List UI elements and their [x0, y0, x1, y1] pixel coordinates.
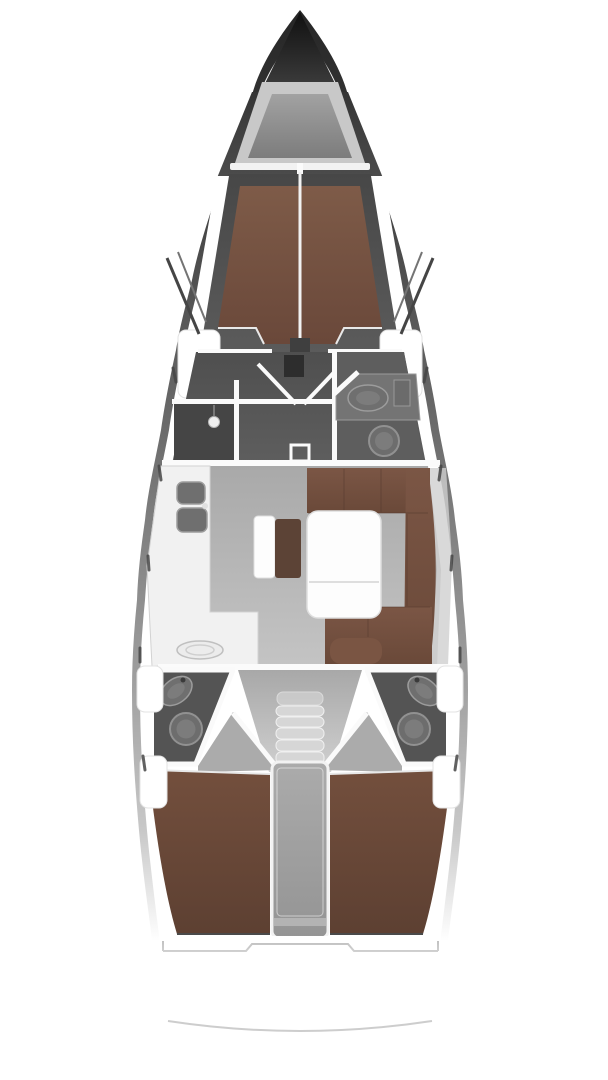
floor-plan-svg	[0, 0, 608, 1080]
yacht-floor-plan	[0, 0, 608, 1080]
shower-head-icon	[209, 417, 220, 428]
forward-head-area	[172, 349, 426, 464]
mast-step	[284, 355, 304, 377]
shower-partition-wall	[234, 380, 239, 464]
aft-head-starboard-faucet	[415, 678, 420, 683]
v-berth-foot-notch	[290, 338, 310, 352]
saloon	[147, 466, 452, 668]
center-bench-pair	[254, 516, 301, 578]
galley-faucet	[202, 503, 208, 509]
engine-box	[272, 762, 328, 938]
aft-head-port-toilet-bowl	[177, 720, 196, 739]
step-3	[276, 728, 324, 739]
v-berth	[218, 172, 382, 352]
fwd-bulkhead-port	[198, 349, 272, 353]
galley-sink-lower	[177, 508, 207, 532]
aft-midship	[150, 670, 450, 772]
center-bench-brown	[275, 519, 301, 578]
companionway-steps	[276, 692, 324, 764]
settee-corner-cushion	[330, 638, 382, 664]
saloon-table	[307, 511, 381, 618]
step-4	[276, 740, 324, 751]
galley-stove	[177, 641, 223, 659]
fwd-head-sink-basin	[356, 391, 380, 405]
cockpit-panel-starboard-fwd	[437, 666, 463, 712]
step-landing	[277, 692, 323, 705]
fwd-head-cabinet	[394, 380, 410, 406]
step-2	[276, 717, 324, 727]
engine-compartment	[272, 762, 328, 938]
head-partition-wall	[172, 399, 332, 404]
stern-platform-arc	[168, 1021, 432, 1031]
engine-box-shelf	[274, 918, 326, 926]
fwd-head-toilet-bowl	[375, 432, 393, 450]
aft-head-starboard-toilet-bowl	[405, 720, 424, 739]
step-1	[276, 706, 324, 716]
aft-head-port-faucet	[181, 678, 186, 683]
cockpit-panel-port-fwd	[137, 666, 163, 712]
galley-sink-upper	[177, 482, 205, 504]
v-berth-center-seam	[299, 172, 302, 338]
center-bench-white	[254, 516, 275, 578]
shower-compartment	[174, 404, 234, 462]
stern-fade	[120, 935, 480, 1013]
